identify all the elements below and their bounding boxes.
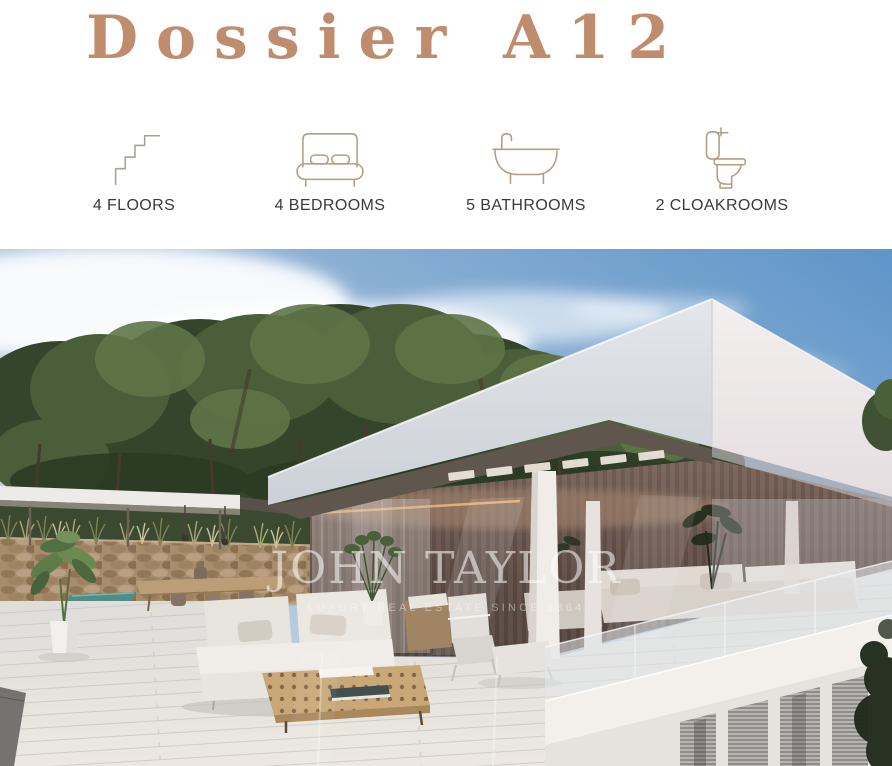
stairs-icon (103, 126, 165, 190)
feature-cloakrooms: 2 CLOAKROOMS (624, 126, 820, 215)
feature-label: 2 CLOAKROOMS (656, 196, 789, 215)
feature-label: 4 BEDROOMS (275, 196, 386, 215)
property-photo: JOHN TAYLOR LUXURY REAL ESTATE SINCE 186… (0, 249, 892, 766)
ottoman (492, 641, 554, 675)
villa-render (0, 249, 892, 766)
bath-icon (485, 126, 567, 190)
feature-bedrooms: 4 BEDROOMS (232, 126, 428, 215)
dossier-page: Dossier A12 4 FLOORS 4 (0, 0, 892, 766)
toilet-icon (691, 126, 753, 190)
feature-floors: 4 FLOORS (36, 126, 232, 215)
feature-bathrooms: 5 BATHROOMS (428, 126, 624, 215)
feature-label: 4 FLOORS (93, 196, 175, 215)
page-title: Dossier A12 (0, 0, 892, 76)
feature-list: 4 FLOORS 4 BEDROOMS (0, 126, 892, 215)
feature-label: 5 BATHROOMS (466, 196, 586, 215)
bed-icon (289, 126, 371, 190)
